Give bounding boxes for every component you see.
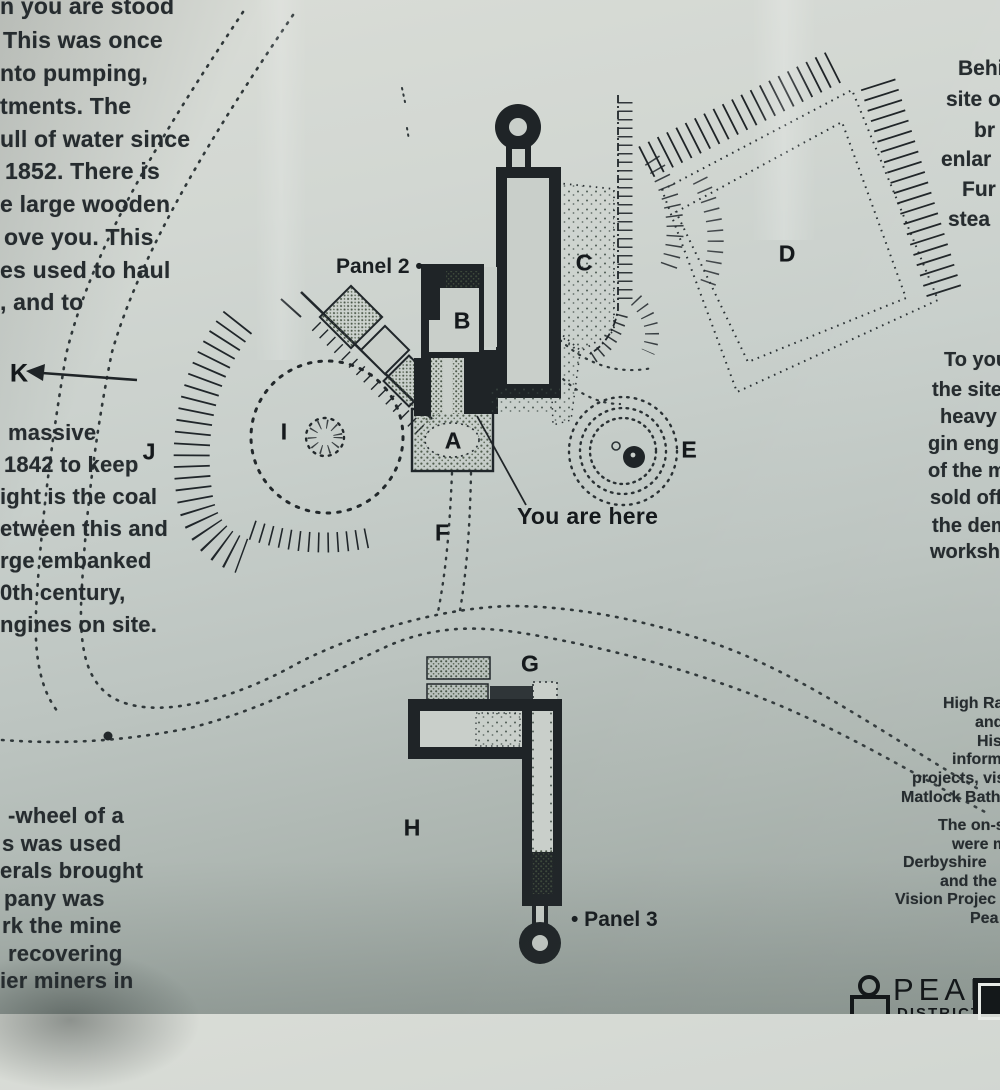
text-line: Fur xyxy=(962,178,996,202)
area-d-hollow xyxy=(646,64,946,392)
text-line: 0th century, xyxy=(0,580,125,606)
text-line: heavy ite xyxy=(940,406,1000,429)
text-line: This was once xyxy=(3,27,163,54)
k-direction-arrow xyxy=(26,364,137,381)
text-line: Vision Projec xyxy=(895,890,996,909)
text-line: massive xyxy=(8,420,96,446)
text-line: informa xyxy=(952,750,1000,769)
text-line: sold off. xyxy=(930,487,1000,510)
text-line: High Rak xyxy=(943,694,1000,713)
text-line: e large wooden xyxy=(0,191,170,218)
text-line: etween this and xyxy=(0,516,168,542)
text-line: worksho xyxy=(930,541,1000,564)
text-line: site o xyxy=(946,88,1000,112)
peak-district-logo-icon xyxy=(849,974,893,1014)
map-label-g: G xyxy=(521,651,539,678)
text-line: Derbyshire xyxy=(903,853,987,872)
map-label-h: H xyxy=(404,815,421,842)
map-label-c: C xyxy=(576,250,593,277)
text-line: tments. The xyxy=(0,93,131,120)
text-line: rk the mine xyxy=(2,913,122,939)
text-line: recovering xyxy=(8,941,123,967)
text-line: were ma xyxy=(952,835,1000,854)
text-line: To you xyxy=(944,349,1000,372)
panel2-marker: Panel 2 • xyxy=(336,255,423,279)
text-line: 1852. There is xyxy=(5,158,160,185)
map-label-b: B xyxy=(454,308,471,335)
text-line: n you are stood xyxy=(0,0,174,20)
text-line: and xyxy=(975,713,1000,732)
text-line: and the S xyxy=(940,872,1000,891)
text-line: erals brought xyxy=(0,858,143,884)
text-line: pany was xyxy=(4,886,105,912)
text-line: stea xyxy=(948,208,990,232)
text-line: the site o xyxy=(932,379,1000,402)
shaft-mound-e xyxy=(569,397,677,505)
text-line: The on-sit xyxy=(938,816,1000,835)
you-are-here-label: You are here xyxy=(517,503,658,530)
map-label-k: K xyxy=(10,360,28,389)
text-line: ier miners in xyxy=(0,968,133,994)
partner-logo-partial xyxy=(973,978,1000,1014)
building-h-complex xyxy=(408,682,562,964)
text-line: enlar xyxy=(941,148,991,172)
text-line: ove you. This xyxy=(4,224,154,251)
text-line: Behin xyxy=(958,57,1000,81)
text-line: br xyxy=(974,119,995,143)
text-line: the demo xyxy=(932,515,1000,538)
text-line: Hist xyxy=(977,732,1000,751)
text-line: -wheel of a xyxy=(8,803,124,829)
map-label-d: D xyxy=(779,241,796,268)
panel3-marker: • Panel 3 xyxy=(571,908,658,932)
text-line: of the min xyxy=(928,460,1000,483)
text-line: ull of water since xyxy=(0,126,190,153)
shaft-a xyxy=(412,409,526,505)
text-line: , and to xyxy=(0,289,83,316)
text-line: Pea xyxy=(970,909,998,928)
area-g-buildings xyxy=(427,657,534,703)
text-line: Matlock Bath, xyxy=(901,788,1000,807)
text-line: nto pumping, xyxy=(0,60,148,87)
map-label-e: E xyxy=(681,437,696,464)
text-line: rge embanked xyxy=(0,548,152,574)
text-line: projects, visi xyxy=(912,769,1000,788)
text-line: ight is the coal xyxy=(0,484,157,510)
engine-house-complex xyxy=(414,104,561,416)
photo-of-mine-site-map-panel: { "panel_text": { "left_top": [ "n you a… xyxy=(0,0,1000,1014)
map-label-i: I xyxy=(281,419,287,446)
map-label-a: A xyxy=(445,428,462,455)
text-line: ngines on site. xyxy=(0,612,157,638)
text-line: 1842 to keep xyxy=(4,452,138,478)
peak-brand-subtext: DISTRICT xyxy=(897,1005,982,1014)
map-label-j: J xyxy=(143,439,156,466)
map-label-f: F xyxy=(435,520,449,547)
text-line: es used to haul xyxy=(0,257,170,284)
text-line: s was used xyxy=(2,831,121,857)
text-line: gin engine xyxy=(928,433,1000,456)
